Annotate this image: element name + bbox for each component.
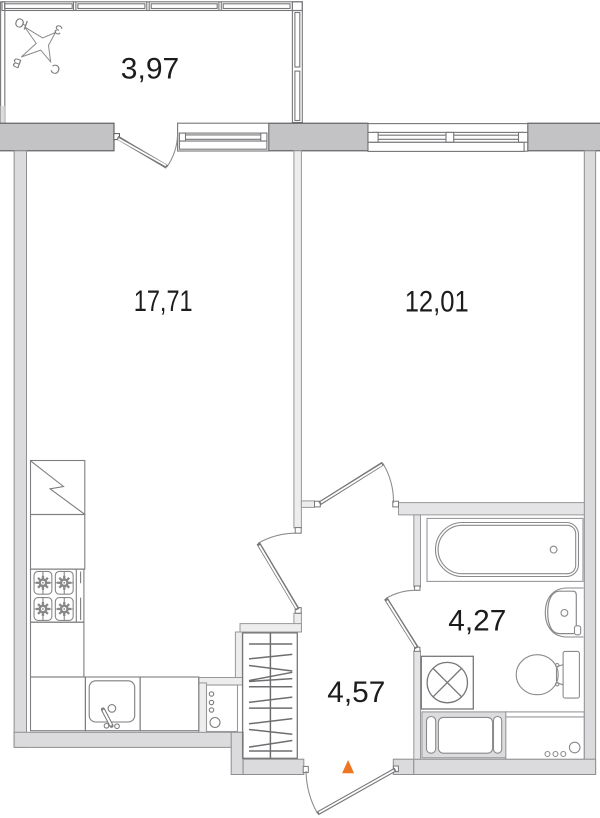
svg-text:17,71: 17,71 <box>134 285 193 318</box>
svg-text:4,57: 4,57 <box>327 676 385 709</box>
svg-text:4,27: 4,27 <box>448 604 506 637</box>
svg-text:12,01: 12,01 <box>405 286 469 319</box>
svg-text:3,97: 3,97 <box>121 52 179 85</box>
